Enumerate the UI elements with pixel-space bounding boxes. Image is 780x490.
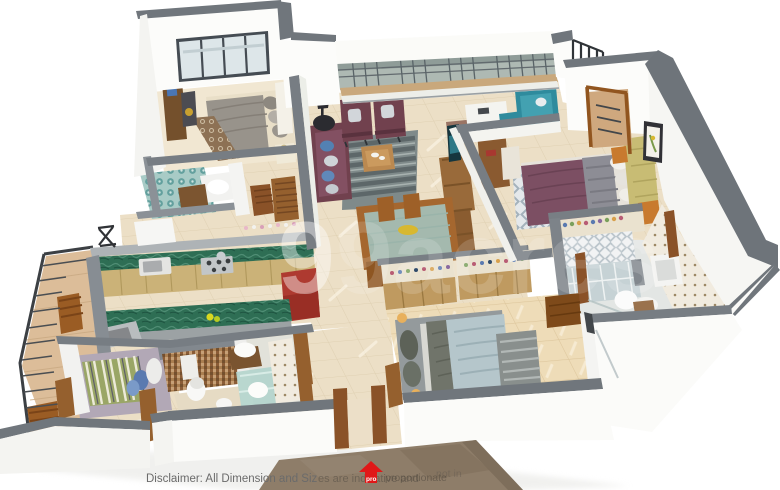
svg-text:Disclaimer: All Dimension and: Disclaimer: All Dimension and Siz [146,473,318,485]
svg-text:proportionate: proportionate [385,472,447,484]
svg-text:9: 9 [278,201,335,315]
svg-text:pro: pro [366,476,377,483]
svg-text:9acres: 9acres [336,201,659,315]
